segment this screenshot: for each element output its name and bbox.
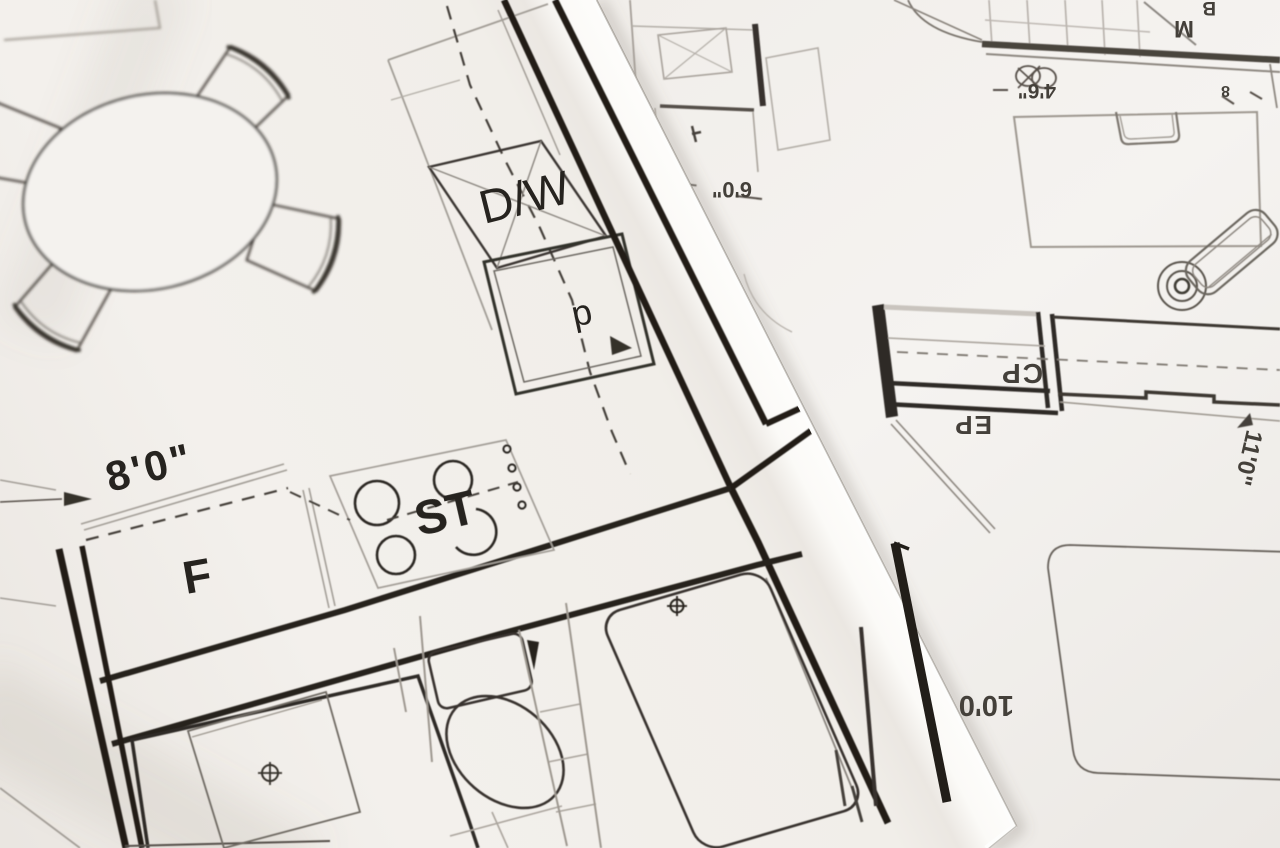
svg-text:M: M (1174, 15, 1194, 42)
svg-text:B: B (1202, 0, 1216, 18)
svg-text:EP: EP (953, 410, 992, 440)
svg-text:6'0": 6'0" (712, 177, 752, 202)
svg-text:4'6": 4'6" (1018, 79, 1056, 102)
svg-text:8: 8 (1221, 82, 1230, 99)
svg-text:CP: CP (1000, 358, 1043, 389)
